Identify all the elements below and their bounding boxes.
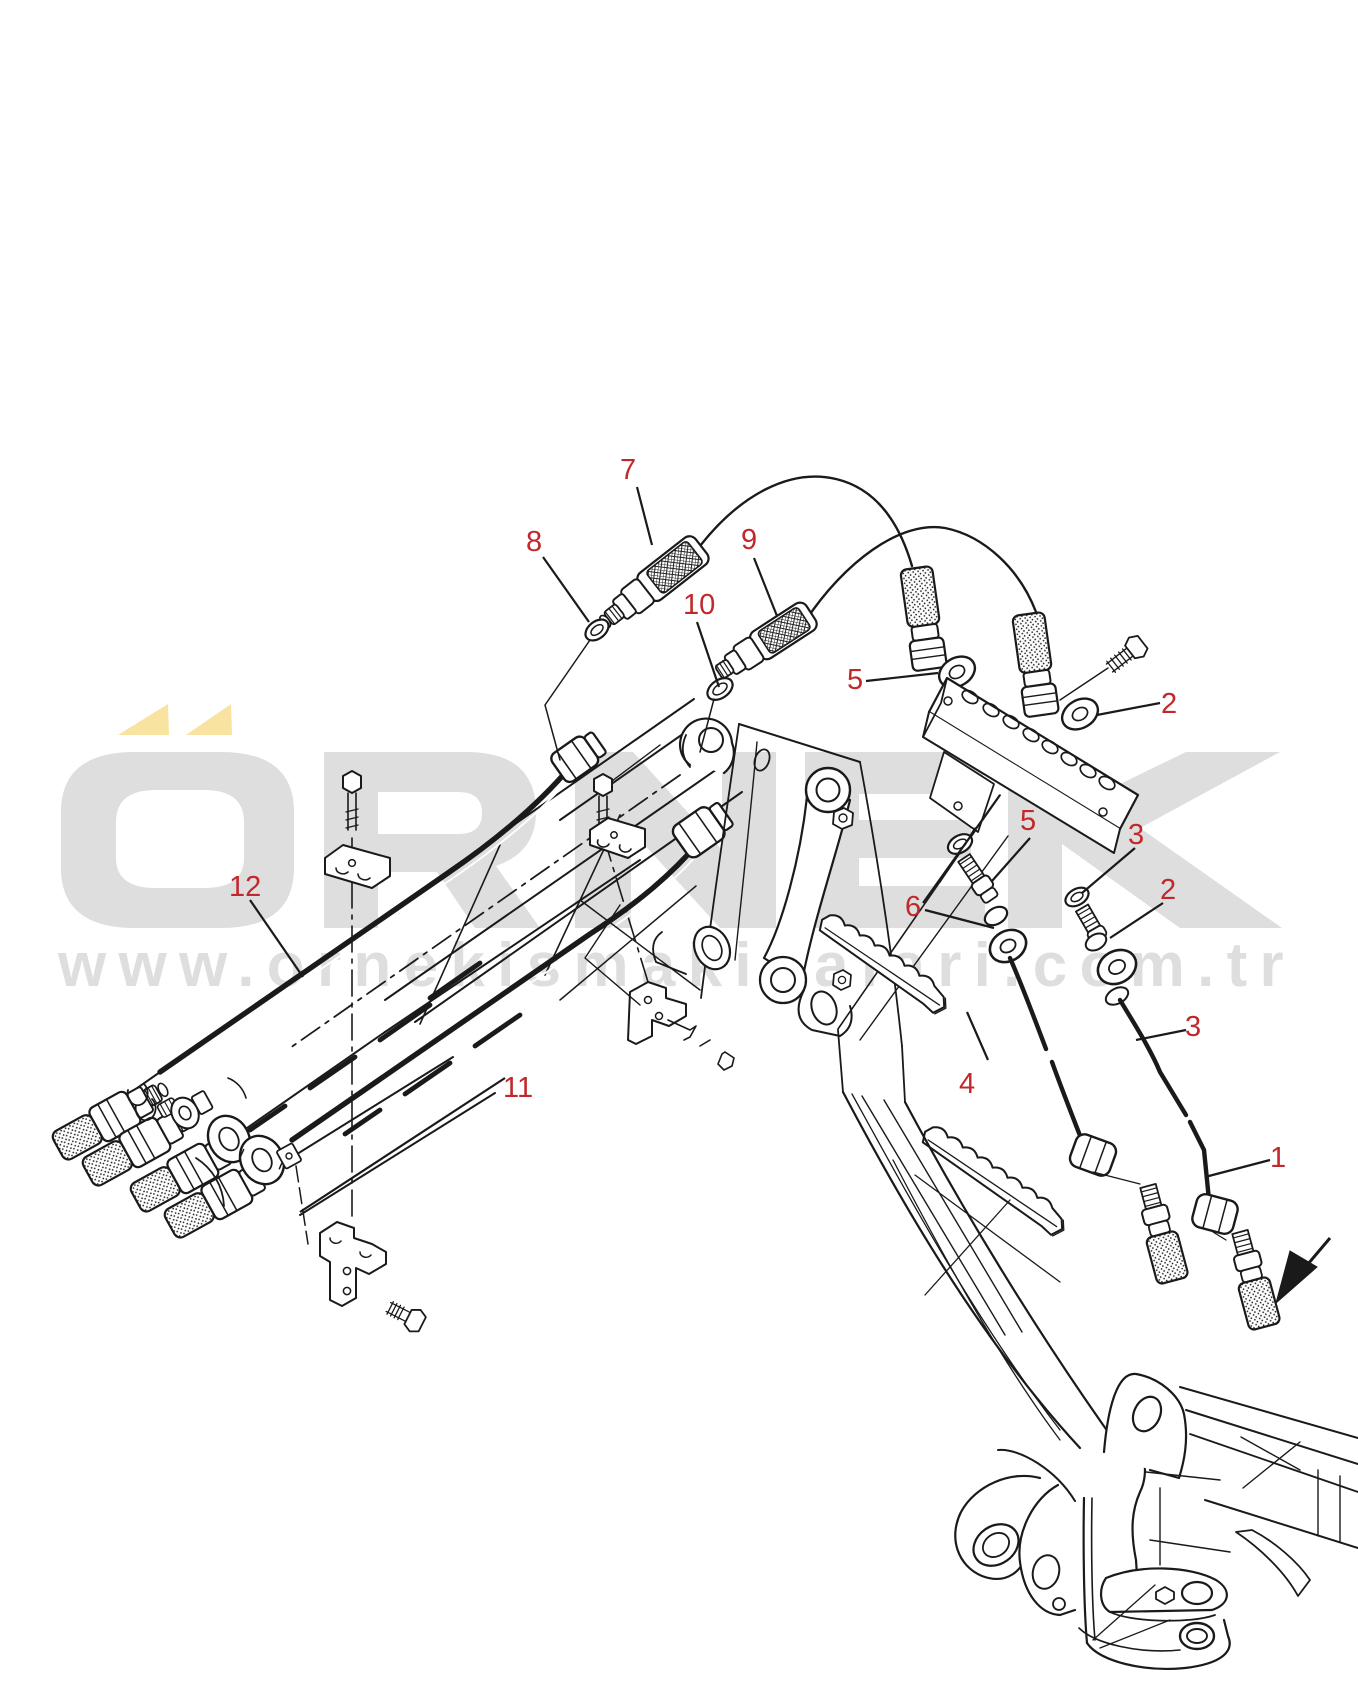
svg-text:5: 5 xyxy=(1020,805,1036,837)
svg-text:11: 11 xyxy=(503,1072,533,1104)
svg-text:3: 3 xyxy=(1128,819,1144,851)
svg-text:5: 5 xyxy=(847,664,863,696)
svg-text:2: 2 xyxy=(1161,688,1177,720)
svg-text:4: 4 xyxy=(959,1068,975,1100)
svg-text:6: 6 xyxy=(905,891,921,923)
svg-text:10: 10 xyxy=(683,589,715,621)
svg-text:3: 3 xyxy=(1185,1011,1201,1043)
svg-text:8: 8 xyxy=(526,526,542,558)
svg-text:12: 12 xyxy=(229,871,261,903)
svg-text:1: 1 xyxy=(1270,1142,1286,1174)
svg-text:7: 7 xyxy=(620,454,636,486)
svg-text:2: 2 xyxy=(1160,874,1176,906)
svg-text:9: 9 xyxy=(741,524,757,556)
